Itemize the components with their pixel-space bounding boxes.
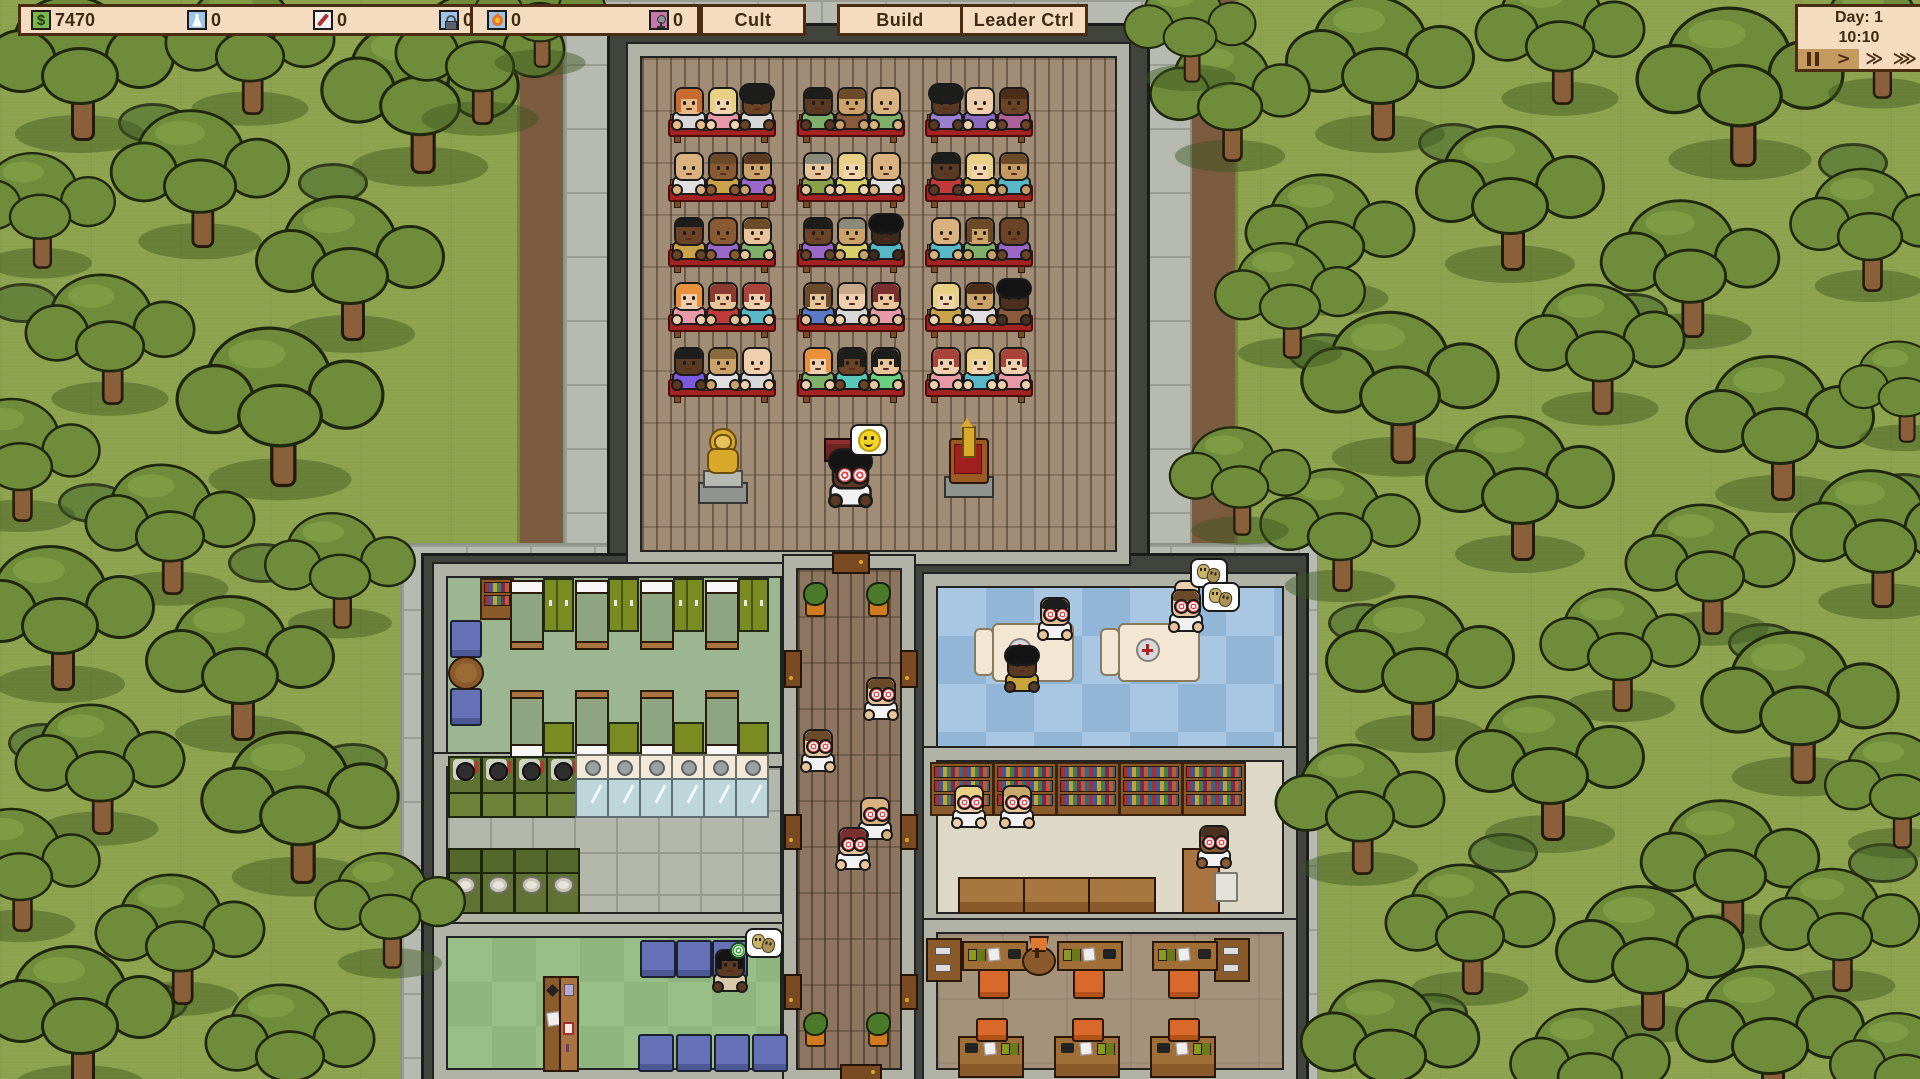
- congregation-member[interactable]: [739, 281, 773, 327]
- shower-glass-door[interactable]: [607, 778, 641, 818]
- bush: [58, 483, 128, 523]
- bush: [1288, 333, 1358, 373]
- bush: [1848, 843, 1918, 883]
- congregation-member[interactable]: [928, 346, 962, 392]
- shower-glass-door[interactable]: [735, 778, 769, 818]
- microphone-icon: [649, 10, 669, 30]
- bush: [1818, 143, 1888, 183]
- tree: [1245, 174, 1416, 327]
- tree: [1829, 1012, 1920, 1079]
- cult-leader[interactable]: [828, 452, 871, 510]
- congregation-member[interactable]: [800, 151, 834, 197]
- leader-ctrl-button[interactable]: Leader Ctrl: [960, 4, 1088, 36]
- congregation-member[interactable]: [928, 151, 962, 197]
- resource-sermon: 0: [649, 10, 683, 31]
- speech-bubble-drama: [745, 928, 783, 958]
- congregation-member[interactable]: [671, 346, 705, 392]
- sermon-value: 0: [673, 10, 683, 31]
- tree: [1555, 885, 1745, 1055]
- tree: [145, 595, 335, 765]
- door[interactable]: [832, 552, 870, 574]
- foot-locker[interactable]: [738, 722, 769, 754]
- tree: [1600, 199, 1781, 361]
- office-desk[interactable]: [1057, 941, 1123, 971]
- filing-cabinet[interactable]: [1214, 938, 1250, 982]
- bush: [0, 283, 58, 323]
- bookshelf[interactable]: [1182, 762, 1246, 816]
- build-button[interactable]: Build: [837, 4, 963, 36]
- bush: [1398, 993, 1468, 1033]
- congregation-member[interactable]: [739, 151, 773, 197]
- door[interactable]: [840, 1064, 882, 1079]
- dorm-bookshelf[interactable]: [480, 578, 514, 620]
- foot-locker[interactable]: [608, 722, 639, 754]
- bush: [118, 983, 188, 1023]
- congregation-member[interactable]: [671, 216, 705, 262]
- waiting-chair[interactable]: [752, 1034, 788, 1072]
- tree: [255, 195, 445, 365]
- clock-panel: Day: 1 10:10 > ≫ ⋙: [1795, 4, 1920, 72]
- speech-bubble-drama: [1202, 582, 1240, 612]
- tree: [176, 327, 385, 514]
- tree: [1685, 355, 1875, 525]
- congregation-member[interactable]: [739, 216, 773, 262]
- office-desk[interactable]: [958, 1036, 1024, 1078]
- sink[interactable]: [607, 754, 641, 780]
- golden-statue[interactable]: [707, 448, 739, 474]
- tree: [1839, 341, 1920, 460]
- door[interactable]: [784, 814, 802, 850]
- fast-forward-button[interactable]: ≫: [1859, 49, 1890, 69]
- congregation-member[interactable]: [671, 86, 705, 132]
- bed[interactable]: [705, 690, 739, 758]
- bush: [228, 543, 298, 583]
- reception-desk-side[interactable]: [559, 976, 579, 1072]
- fire-value: 0: [511, 10, 521, 31]
- shower-glass-door[interactable]: [671, 778, 705, 818]
- sink[interactable]: [575, 754, 609, 780]
- bush: [1728, 623, 1798, 663]
- filing-cabinet[interactable]: [926, 938, 962, 982]
- waiting-chair[interactable]: [714, 1034, 750, 1072]
- golden-obelisk: [962, 426, 976, 458]
- bookshelf[interactable]: [1119, 762, 1183, 816]
- office-desk[interactable]: [1152, 941, 1218, 971]
- congregation-member[interactable]: [996, 86, 1030, 132]
- waiting-chair[interactable]: [676, 1034, 712, 1072]
- congregation-member[interactable]: [928, 216, 962, 262]
- toilet-stall[interactable]: [546, 848, 580, 914]
- congregation-member[interactable]: [834, 281, 868, 327]
- tree: [1539, 588, 1701, 733]
- speech-bubble-happy: [850, 424, 888, 456]
- office-desk[interactable]: [1150, 1036, 1216, 1078]
- congregation-member[interactable]: [705, 281, 739, 327]
- cultist-reader[interactable]: [999, 784, 1033, 830]
- congregation-member[interactable]: [834, 346, 868, 392]
- tree: [1640, 799, 1821, 961]
- waiting-chair[interactable]: [640, 940, 676, 978]
- sink[interactable]: [735, 754, 769, 780]
- potted-plant: [866, 1016, 887, 1044]
- shower-glass-door[interactable]: [575, 778, 609, 818]
- tree: [264, 512, 416, 648]
- cultist-doctor[interactable]: [1168, 588, 1202, 634]
- bush: [8, 723, 78, 763]
- research-value: 0: [211, 10, 221, 31]
- bed[interactable]: [575, 580, 609, 650]
- congregation-member[interactable]: [962, 86, 996, 132]
- library-bench[interactable]: [958, 877, 1026, 914]
- cultist-librarian[interactable]: [1196, 824, 1230, 870]
- tree: [1700, 631, 1900, 810]
- shower-stall[interactable]: [448, 756, 482, 818]
- play-button[interactable]: >: [1829, 49, 1860, 69]
- congregation-member[interactable]: [868, 281, 902, 327]
- tree: [0, 545, 155, 715]
- tree: [1475, 0, 1646, 127]
- congregation-member[interactable]: [996, 346, 1030, 392]
- tree: [1759, 868, 1920, 1013]
- game-world: [0, 0, 1920, 1079]
- scribing-value: 0: [337, 10, 347, 31]
- foot-locker[interactable]: [543, 722, 574, 754]
- door[interactable]: [900, 974, 918, 1010]
- congregation-member[interactable]: [996, 281, 1030, 327]
- door[interactable]: [784, 650, 802, 688]
- congregation-member[interactable]: [928, 281, 962, 327]
- lock-icon: [439, 10, 459, 30]
- cultist-reader[interactable]: [951, 784, 985, 830]
- bush: [1868, 473, 1920, 513]
- office-chair[interactable]: [976, 1018, 1008, 1042]
- congregation-member[interactable]: [868, 151, 902, 197]
- fastest-forward-button[interactable]: ⋙: [1890, 49, 1920, 69]
- library-bench[interactable]: [1088, 877, 1156, 914]
- waiting-chair[interactable]: [638, 1034, 674, 1072]
- anatomy-dish: [1136, 638, 1160, 662]
- sink[interactable]: [639, 754, 673, 780]
- locker[interactable]: [543, 578, 574, 632]
- exam-chair[interactable]: [974, 628, 994, 676]
- recruit[interactable]: [712, 948, 746, 994]
- locker[interactable]: [738, 578, 769, 632]
- congregation-member[interactable]: [800, 216, 834, 262]
- potted-plant: [866, 586, 887, 614]
- bush: [1468, 833, 1538, 873]
- time-label: 10:10: [1798, 27, 1920, 47]
- tree: [1509, 1008, 1671, 1079]
- congregation-member[interactable]: [996, 151, 1030, 197]
- office-desk[interactable]: [1054, 1036, 1120, 1078]
- flask-icon: [187, 10, 207, 30]
- tree: [205, 984, 376, 1079]
- congregation-member[interactable]: [962, 281, 996, 327]
- bush: [298, 163, 368, 203]
- tree: [1675, 965, 1865, 1079]
- bed[interactable]: [510, 580, 544, 650]
- library-bench[interactable]: [1023, 877, 1091, 914]
- resource-money: $ 7470: [31, 10, 95, 31]
- congregation-member[interactable]: [962, 216, 996, 262]
- office-chair[interactable]: [978, 969, 1010, 999]
- coffee-table[interactable]: [448, 656, 484, 690]
- tree: [0, 808, 101, 953]
- door[interactable]: [784, 974, 802, 1010]
- door[interactable]: [900, 814, 918, 850]
- congregation-member[interactable]: [705, 151, 739, 197]
- sink[interactable]: [671, 754, 705, 780]
- pencil-icon: [313, 10, 333, 30]
- armchair[interactable]: [450, 620, 482, 658]
- resource-fire: 0: [487, 10, 521, 31]
- congregation-member[interactable]: [868, 216, 902, 262]
- cult-button[interactable]: Cult: [700, 4, 806, 36]
- pause-button[interactable]: [1798, 49, 1829, 69]
- bed[interactable]: [510, 690, 544, 758]
- potted-plant: [803, 1016, 824, 1044]
- tree: [1789, 168, 1920, 313]
- bed[interactable]: [575, 690, 609, 758]
- congregation-member[interactable]: [868, 86, 902, 132]
- shower-glass-door[interactable]: [703, 778, 737, 818]
- cultist[interactable]: [863, 676, 897, 722]
- obelisk-tip: [961, 418, 973, 427]
- office-chair[interactable]: [1073, 969, 1105, 999]
- speed-controls: > ≫ ⋙: [1798, 49, 1920, 69]
- tree: [1425, 415, 1615, 585]
- bush: [118, 103, 188, 143]
- congregation-member[interactable]: [705, 86, 739, 132]
- cult-button-label: Cult: [735, 10, 772, 31]
- bed[interactable]: [705, 580, 739, 650]
- game-viewport: $ 7470 0 0 0 0 0 Cult Build Le: [0, 0, 1920, 1079]
- congregation-member[interactable]: [834, 151, 868, 197]
- locker[interactable]: [673, 578, 704, 632]
- patient[interactable]: [1004, 648, 1038, 694]
- congregation-member[interactable]: [739, 346, 773, 392]
- congregation-member[interactable]: [868, 346, 902, 392]
- foot-locker[interactable]: [673, 722, 704, 754]
- door[interactable]: [900, 650, 918, 688]
- waiting-chair[interactable]: [676, 940, 712, 978]
- congregation-member[interactable]: [705, 216, 739, 262]
- resource-scribing: 0: [313, 10, 347, 31]
- resource-panel-primary: $ 7470 0 0 0: [18, 4, 486, 36]
- build-button-label: Build: [876, 10, 924, 31]
- day-label: Day: 1: [1798, 7, 1920, 27]
- bush: [318, 743, 388, 783]
- congregation-member[interactable]: [800, 346, 834, 392]
- bush: [1598, 293, 1668, 333]
- congregation-member[interactable]: [996, 216, 1030, 262]
- cultist-doctor[interactable]: [1037, 596, 1071, 642]
- congregation-member[interactable]: [739, 86, 773, 132]
- congregation-member[interactable]: [671, 151, 705, 197]
- congregation-member[interactable]: [834, 86, 868, 132]
- congregation-member[interactable]: [962, 151, 996, 197]
- money-value: 7470: [55, 10, 95, 31]
- bush: [1328, 603, 1398, 643]
- toilet-stall[interactable]: [481, 848, 515, 914]
- office-chair[interactable]: [1168, 969, 1200, 999]
- resource-panel-secondary: 0 0: [470, 4, 700, 36]
- congregation-member[interactable]: [800, 281, 834, 327]
- toilet-stall[interactable]: [514, 848, 548, 914]
- potted-plant: [803, 586, 824, 614]
- exam-chair[interactable]: [1100, 628, 1120, 676]
- office-desk[interactable]: [962, 941, 1028, 971]
- paper-tray[interactable]: [1214, 872, 1238, 902]
- toilet-stall[interactable]: [448, 848, 482, 914]
- lamp-pole: [1035, 948, 1039, 958]
- shower-glass-door[interactable]: [639, 778, 673, 818]
- office-chair[interactable]: [1072, 1018, 1104, 1042]
- bookshelf[interactable]: [1056, 762, 1120, 816]
- money-icon: $: [31, 10, 51, 30]
- armchair[interactable]: [450, 688, 482, 726]
- shower-stall[interactable]: [514, 756, 548, 818]
- leader-ctrl-button-label: Leader Ctrl: [974, 10, 1075, 31]
- congregation-member[interactable]: [671, 281, 705, 327]
- congregation-member[interactable]: [928, 86, 962, 132]
- bush: [1418, 123, 1488, 163]
- office-chair[interactable]: [1168, 1018, 1200, 1042]
- resource-security: 0: [439, 10, 473, 31]
- congregation-member[interactable]: [800, 86, 834, 132]
- congregation-member[interactable]: [705, 346, 739, 392]
- congregation-member[interactable]: [834, 216, 868, 262]
- sink[interactable]: [703, 754, 737, 780]
- cultist[interactable]: [835, 826, 869, 872]
- bed[interactable]: [640, 690, 674, 758]
- tree: [1385, 864, 1556, 1017]
- resource-research: 0: [187, 10, 221, 31]
- cultist[interactable]: [800, 728, 834, 774]
- tree: [0, 152, 116, 288]
- shower-stall[interactable]: [481, 756, 515, 818]
- locker[interactable]: [608, 578, 639, 632]
- fire-icon: [487, 10, 507, 30]
- congregation-member[interactable]: [962, 346, 996, 392]
- bed[interactable]: [640, 580, 674, 650]
